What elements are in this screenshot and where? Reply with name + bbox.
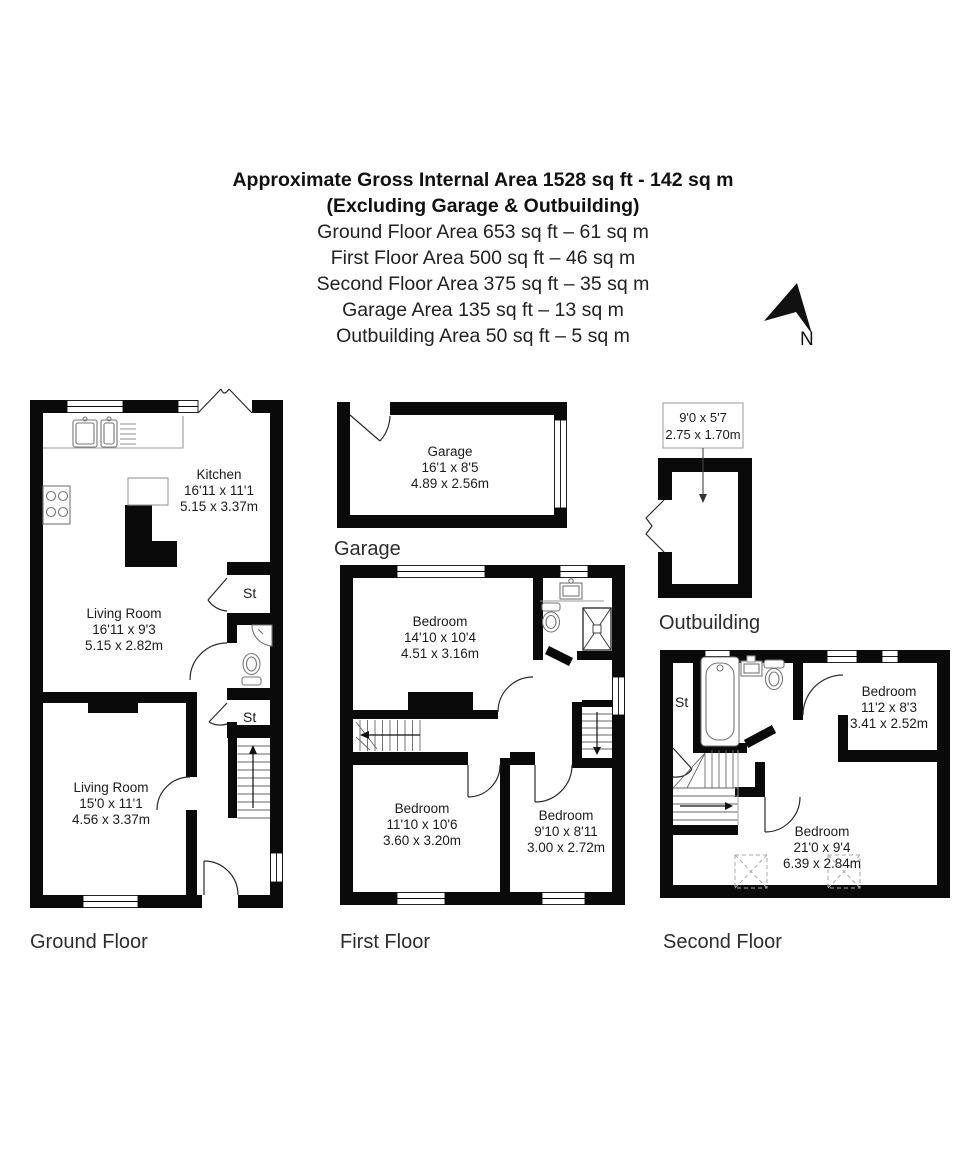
room-dims-imperial: 11'2 x 8'3 bbox=[809, 700, 969, 716]
garage-title: Garage bbox=[334, 538, 401, 561]
stairs-arrow bbox=[593, 747, 601, 755]
area-line-garage: Garage Area 135 sq ft – 13 sq m bbox=[0, 297, 966, 323]
ground-floor-title: Ground Floor bbox=[30, 931, 148, 954]
area-line-outbuilding: Outbuilding Area 50 sq ft – 5 sq m bbox=[0, 323, 966, 349]
first-floor-title: First Floor bbox=[340, 931, 430, 954]
room-label-sf-bed1: Bedroom 11'2 x 8'3 3.41 x 2.52m bbox=[809, 684, 969, 732]
room-name: Living Room bbox=[31, 780, 191, 796]
area-line-ground: Ground Floor Area 653 sq ft – 61 sq m bbox=[0, 219, 966, 245]
room-label-living2: Living Room 15'0 x 11'1 4.56 x 3.37m bbox=[31, 780, 191, 828]
room-dims-metric: 5.15 x 3.37m bbox=[139, 499, 299, 515]
room-label-ff-bed3: Bedroom 9'10 x 8'11 3.00 x 2.72m bbox=[486, 808, 646, 856]
store-label-1: St bbox=[243, 585, 256, 601]
room-dims-metric: 4.51 x 3.16m bbox=[360, 646, 520, 662]
room-name: Bedroom bbox=[809, 684, 969, 700]
ground-floor-stairs bbox=[238, 745, 271, 818]
room-dims-imperial: 16'11 x 11'1 bbox=[139, 483, 299, 499]
room-label-sf-bed2: Bedroom 21'0 x 9'4 6.39 x 2.84m bbox=[742, 824, 902, 872]
ground-floor-wc-fixtures bbox=[242, 625, 272, 685]
corner-basin bbox=[252, 625, 272, 646]
first-floor-bathroom-fixtures bbox=[540, 579, 611, 650]
room-name: Bedroom bbox=[486, 808, 646, 824]
outbuilding-title: Outbuilding bbox=[659, 612, 760, 635]
stairs-arrow bbox=[725, 802, 733, 810]
header-title-line1: Approximate Gross Internal Area 1528 sq … bbox=[0, 167, 966, 193]
room-name: Kitchen bbox=[139, 467, 299, 483]
room-label-garage: Garage 16'1 x 8'5 4.89 x 2.56m bbox=[370, 444, 530, 492]
toilet-cistern bbox=[542, 603, 560, 611]
room-dims-imperial: 21'0 x 9'4 bbox=[742, 840, 902, 856]
room-dims-metric: 2.75 x 1.70m bbox=[663, 426, 743, 443]
room-dims-imperial: 14'10 x 10'4 bbox=[360, 630, 520, 646]
room-dims-metric: 5.15 x 2.82m bbox=[44, 638, 204, 654]
room-dims-imperial: 16'11 x 9'3 bbox=[44, 622, 204, 638]
outbuilding-dims: 9'0 x 5'7 2.75 x 1.70m bbox=[663, 409, 743, 443]
room-dims-metric: 6.39 x 2.84m bbox=[742, 856, 902, 872]
second-floor-title: Second Floor bbox=[663, 931, 782, 954]
area-line-second: Second Floor Area 375 sq ft – 35 sq m bbox=[0, 271, 966, 297]
room-label-kitchen: Kitchen 16'11 x 11'1 5.15 x 3.37m bbox=[139, 467, 299, 515]
callout-arrow bbox=[699, 494, 707, 503]
outbuilding-plan bbox=[658, 458, 752, 598]
room-dims-metric: 3.60 x 3.20m bbox=[342, 833, 502, 849]
room-name: Living Room bbox=[44, 606, 204, 622]
room-dims-metric: 3.00 x 2.72m bbox=[486, 840, 646, 856]
room-dims-metric: 4.56 x 3.37m bbox=[31, 812, 191, 828]
floorplan-page: Approximate Gross Internal Area 1528 sq … bbox=[0, 0, 980, 1160]
draining-board bbox=[120, 424, 136, 444]
area-line-first: First Floor Area 500 sq ft – 46 sq m bbox=[0, 245, 966, 271]
shower-cubicle bbox=[583, 608, 611, 650]
store-label-sf: St bbox=[675, 694, 688, 710]
first-floor-doors bbox=[468, 677, 572, 802]
room-name: Garage bbox=[370, 444, 530, 460]
bathroom-angled-door bbox=[746, 729, 774, 744]
room-label-ff-bed1: Bedroom 14'10 x 10'4 4.51 x 3.16m bbox=[360, 614, 520, 662]
hob bbox=[43, 486, 70, 524]
room-label-ff-bed2: Bedroom 11'10 x 10'6 3.60 x 3.20m bbox=[342, 801, 502, 849]
north-label: N bbox=[800, 329, 814, 351]
room-name: Bedroom bbox=[360, 614, 520, 630]
room-dims-metric: 3.41 x 2.52m bbox=[809, 716, 969, 732]
toilet-cistern bbox=[764, 660, 784, 668]
room-dims-imperial: 15'0 x 11'1 bbox=[31, 796, 191, 812]
bathroom-angled-door bbox=[547, 650, 571, 662]
room-name: Bedroom bbox=[342, 801, 502, 817]
room-label-living1: Living Room 16'11 x 9'3 5.15 x 2.82m bbox=[44, 606, 204, 654]
room-dims-imperial: 16'1 x 8'5 bbox=[370, 460, 530, 476]
area-summary-header: Approximate Gross Internal Area 1528 sq … bbox=[0, 167, 966, 349]
room-dims-imperial: 11'10 x 10'6 bbox=[342, 817, 502, 833]
store-label-2: St bbox=[243, 709, 256, 725]
second-floor-stairs bbox=[673, 750, 738, 825]
outbuilding-door bbox=[646, 500, 664, 552]
room-name: Bedroom bbox=[742, 824, 902, 840]
room-dims-imperial: 9'10 x 8'11 bbox=[486, 824, 646, 840]
header-title-line2: (Excluding Garage & Outbuilding) bbox=[0, 193, 966, 219]
kitchen-sink-2 bbox=[101, 420, 117, 447]
room-dims-imperial: 9'0 x 5'7 bbox=[663, 409, 743, 426]
room-dims-metric: 4.89 x 2.56m bbox=[370, 476, 530, 492]
